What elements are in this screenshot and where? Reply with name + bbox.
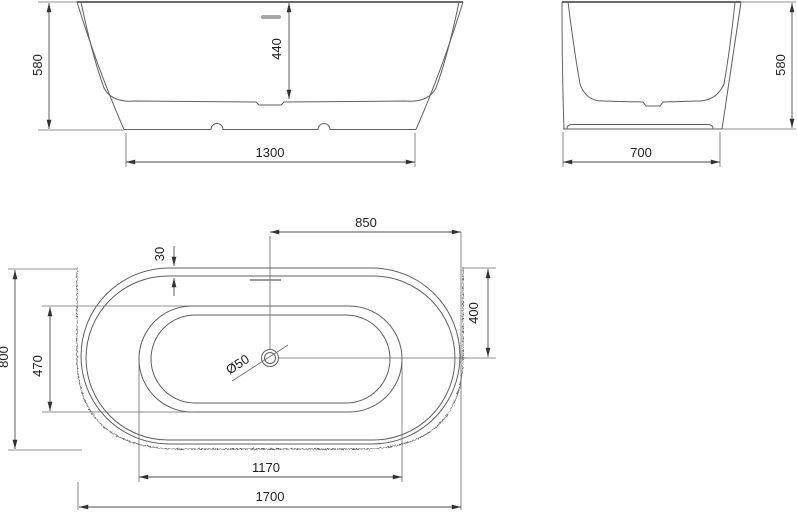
top-1700-label: 1700 [256,489,285,504]
front-base-line [124,124,416,130]
side-outer-left-wall [562,2,564,129]
front-outer-right-wall [416,2,463,130]
top-basin-bottom-inner [151,315,390,403]
side-base-label: 700 [630,145,652,160]
front-overflow-slot [261,15,281,19]
side-inner-basin-profile [568,2,735,106]
top-basin-bottom-outer [139,306,402,412]
top-view: Ø50 850 30 400 800 470 1170 1700 [0,215,496,510]
side-view: 580 700 [562,2,796,167]
front-depth-label: 440 [269,38,284,60]
front-outer-left-wall [77,2,124,130]
front-height-label: 580 [30,54,45,76]
side-outer-right-wall [722,2,741,129]
drawing-canvas: 580 440 1300 580 700 [0,0,797,512]
front-base-label: 1300 [256,145,285,160]
top-800-label: 800 [0,346,11,368]
top-470-label: 470 [30,355,45,377]
top-400-label: 400 [466,302,481,324]
top-850-label: 850 [355,215,377,230]
bathtub-dimension-drawing: 580 440 1300 580 700 [0,0,797,512]
front-view: 580 440 1300 [30,2,463,167]
side-height-label: 580 [773,54,788,76]
top-1170-label: 1170 [252,460,280,475]
top-30-label: 30 [152,247,167,261]
side-plinth [567,125,713,130]
top-drain-label: Ø50 [223,351,252,377]
